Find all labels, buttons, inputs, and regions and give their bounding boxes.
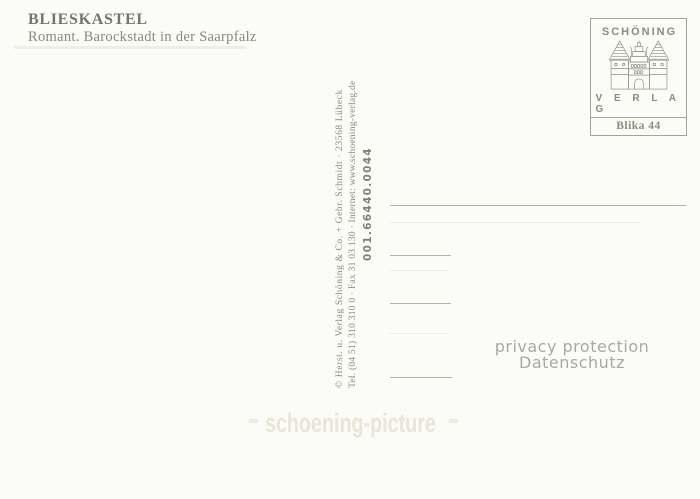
address-line bbox=[390, 255, 451, 256]
imprint-order-number: 001.66440.0044 bbox=[362, 20, 374, 388]
publisher-brand-label: SCHÖNING bbox=[600, 26, 677, 38]
address-line bbox=[390, 205, 686, 206]
watermark-dash bbox=[249, 419, 258, 423]
card-title: BLIESKASTEL bbox=[28, 11, 148, 29]
privacy-notice: privacy protection Datenschutz bbox=[477, 339, 667, 371]
series-code-label: Blika 44 bbox=[591, 117, 686, 135]
imprint-block: © Herst. u. Verlag Schöning & Co. + Gebr… bbox=[334, 20, 374, 388]
watermark-text: schoening-picture bbox=[265, 408, 436, 439]
holstentor-gate-icon bbox=[608, 39, 670, 91]
scan-artifact-line bbox=[390, 222, 640, 223]
address-line bbox=[390, 377, 452, 378]
scan-artifact-line bbox=[390, 333, 448, 334]
card-subtitle: Romant. Barockstadt in der Saarpfalz bbox=[28, 29, 257, 46]
watermark-dash bbox=[449, 419, 458, 423]
publisher-type-label: V E R L A G bbox=[591, 93, 686, 115]
postcard-back: BLIESKASTEL Romant. Barockstadt in der S… bbox=[0, 0, 700, 499]
imprint-publisher-line: © Herst. u. Verlag Schöning & Co. + Gebr… bbox=[334, 20, 346, 388]
scan-artifact-line bbox=[390, 270, 448, 271]
imprint-contact-line: Tel. (04 51) 310 310 0 · Fax 31 03 130 ·… bbox=[347, 20, 359, 388]
privacy-notice-line2: Datenschutz bbox=[477, 355, 667, 371]
address-line bbox=[390, 303, 451, 304]
scan-artifact-line bbox=[14, 46, 247, 49]
stamp-box: SCHÖNING bbox=[590, 18, 687, 136]
